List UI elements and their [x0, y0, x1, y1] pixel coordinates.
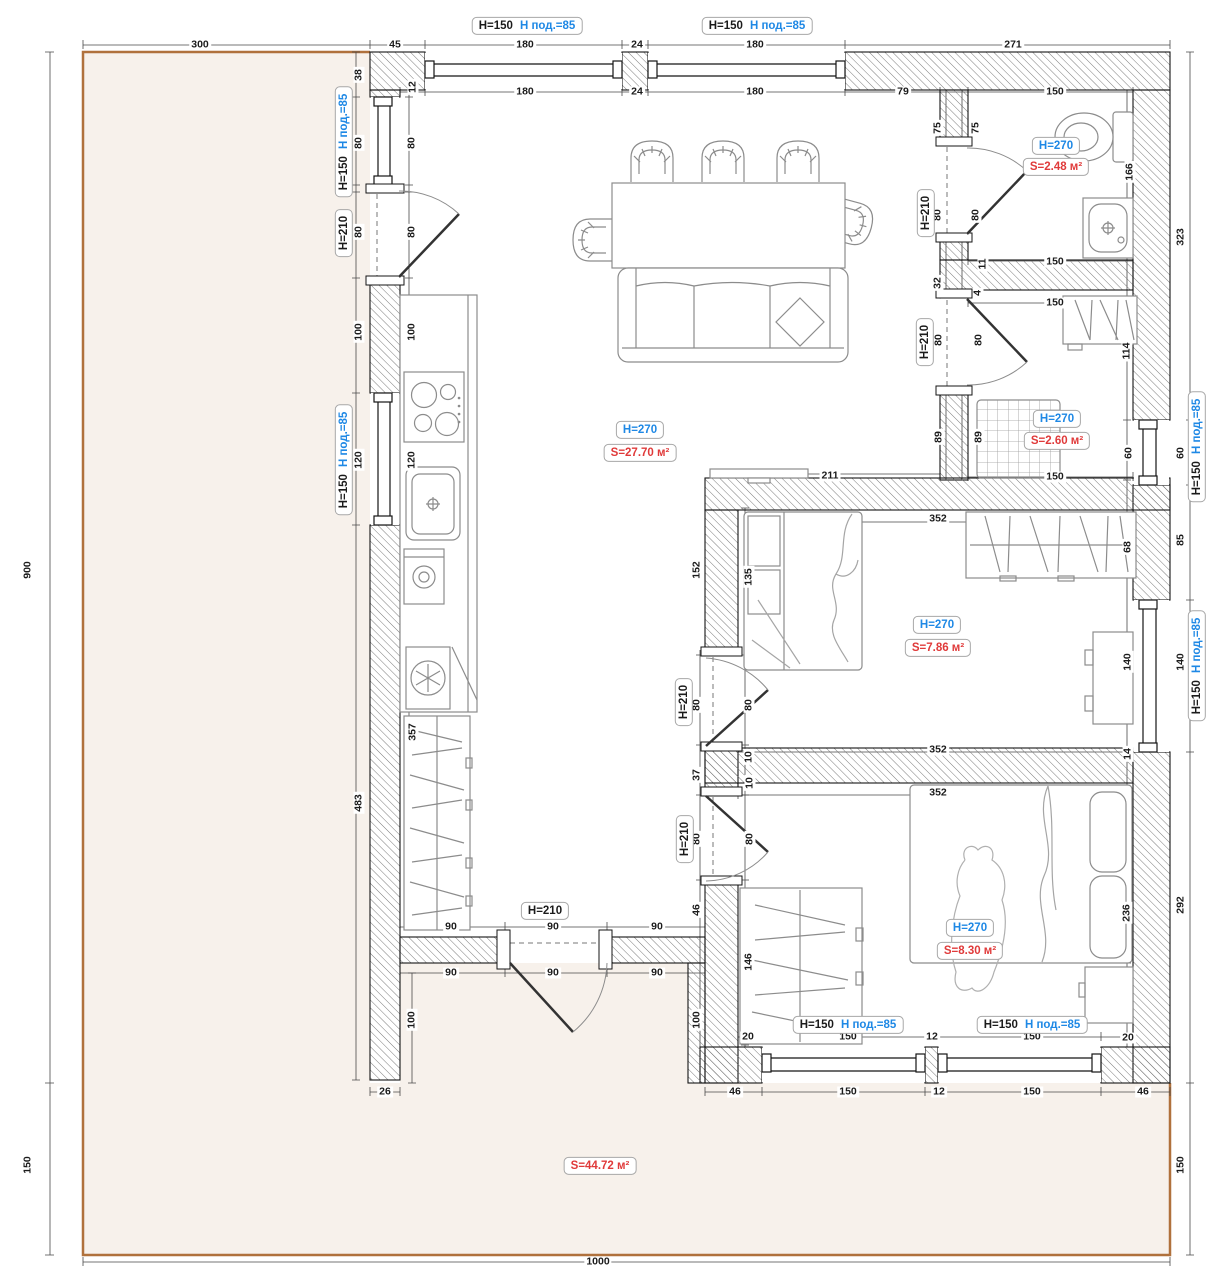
dim-label: 80: [973, 332, 984, 348]
dim-label: 75: [932, 120, 943, 136]
dim-label: 180: [514, 39, 536, 50]
dim-label: 236: [1121, 902, 1132, 924]
dim-label: 10: [743, 749, 754, 765]
room-area-label: S=27.70 м²: [604, 444, 677, 462]
dim-label: 180: [514, 86, 536, 97]
door-height-label: H=210: [521, 902, 569, 920]
window-height-label: H=150Н под.=85: [793, 1016, 904, 1034]
dim-label: 80: [353, 135, 364, 151]
room-area-label: S=2.60 м²: [1024, 432, 1090, 450]
room-area-label: S=44.72 м²: [564, 1157, 637, 1175]
dim-label: 352: [927, 787, 949, 798]
dim-label: 80: [691, 697, 702, 713]
dim-label: 20: [740, 1031, 756, 1042]
dim-label: 4: [972, 288, 983, 298]
dim-label: 46: [1135, 1086, 1151, 1097]
dim-label: 900: [22, 559, 33, 581]
dim-label: 150: [1175, 1154, 1186, 1176]
dim-label: 89: [973, 429, 984, 445]
door-height-label: H=210: [675, 678, 693, 726]
dim-label: 150: [837, 1086, 859, 1097]
dim-label: 45: [387, 39, 403, 50]
dim-label: 300: [189, 39, 211, 50]
floor-plan-page: 3004518024180271121802418079150388080100…: [0, 0, 1223, 1280]
dim-label: 1000: [584, 1256, 611, 1267]
dim-label: 150: [22, 1154, 33, 1176]
door-height-label: H=210: [676, 815, 694, 863]
dim-label: 90: [443, 921, 459, 932]
window-height-label: H=150Н под.=85: [1188, 392, 1206, 503]
dim-label: 75: [970, 120, 981, 136]
dim-label: 11: [977, 256, 988, 271]
dim-label: 24: [629, 39, 645, 50]
dim-label: 46: [727, 1086, 743, 1097]
dim-label: 14: [1122, 746, 1133, 762]
door-height-label: H=210: [335, 209, 353, 257]
room-height-label: H=270: [1033, 410, 1081, 428]
dim-label: 68: [1122, 539, 1133, 555]
dim-label: 80: [743, 697, 754, 713]
dim-label: 12: [924, 1031, 940, 1042]
window-height-label: H=150Н под.=85: [977, 1016, 1088, 1034]
dim-label: 211: [820, 470, 841, 481]
labels-layer: 3004518024180271121802418079150388080100…: [0, 0, 1223, 1280]
window-height-label: H=150Н под.=85: [702, 17, 813, 35]
dim-label: 352: [927, 513, 949, 524]
dim-label: 150: [1044, 471, 1066, 482]
dim-label: 180: [744, 86, 766, 97]
dim-label: 180: [744, 39, 766, 50]
dim-label: 26: [377, 1086, 393, 1097]
dim-label: 90: [649, 967, 665, 978]
room-area-label: S=7.86 м²: [905, 639, 971, 657]
dim-label: 12: [931, 1086, 947, 1097]
dim-label: 60: [1175, 445, 1186, 461]
dim-label: 37: [691, 767, 702, 783]
dim-label: 292: [1175, 894, 1186, 916]
dim-label: 20: [1120, 1032, 1136, 1043]
dim-label: 150: [1044, 297, 1066, 308]
dim-label: 90: [545, 967, 561, 978]
dim-label: 100: [691, 1009, 702, 1031]
dim-label: 12: [407, 79, 418, 95]
dim-label: 150: [1021, 1086, 1043, 1097]
dim-label: 120: [353, 449, 364, 471]
dim-label: 80: [744, 831, 755, 847]
dim-label: 80: [406, 224, 417, 240]
dim-label: 90: [443, 967, 459, 978]
room-height-label: H=270: [946, 919, 994, 937]
dim-label: 146: [743, 951, 754, 973]
dim-label: 483: [353, 792, 364, 814]
dim-label: 24: [629, 86, 645, 97]
dim-label: 166: [1124, 161, 1135, 183]
dim-label: 79: [895, 86, 911, 97]
dim-label: 80: [406, 135, 417, 151]
window-height-label: H=150Н под.=85: [335, 405, 353, 516]
dim-label: 38: [353, 67, 364, 83]
dim-label: 352: [927, 744, 949, 755]
dim-label: 271: [1002, 39, 1024, 50]
dim-label: 80: [353, 224, 364, 240]
dim-label: 140: [1122, 651, 1133, 673]
door-height-label: H=210: [917, 189, 935, 237]
dim-label: 100: [406, 1009, 417, 1031]
window-height-label: H=150Н под.=85: [472, 17, 583, 35]
room-height-label: H=270: [1032, 137, 1080, 155]
dim-label: 100: [406, 321, 417, 343]
dim-label: 46: [691, 902, 702, 918]
dim-label: 114: [1121, 341, 1132, 362]
room-area-label: S=2.48 м²: [1023, 158, 1089, 176]
dim-label: 150: [1044, 256, 1066, 267]
door-height-label: H=210: [916, 318, 934, 366]
dim-label: 80: [933, 332, 944, 348]
dim-label: 100: [353, 321, 364, 343]
room-height-label: H=270: [616, 421, 664, 439]
dim-label: 80: [970, 207, 981, 223]
dim-label: 135: [743, 566, 754, 588]
dim-label: 10: [744, 775, 755, 791]
dim-label: 152: [691, 559, 702, 581]
dim-label: 32: [932, 275, 943, 291]
dim-label: 89: [933, 429, 944, 445]
dim-label: 90: [649, 921, 665, 932]
dim-label: 90: [545, 921, 561, 932]
dim-label: 357: [407, 721, 418, 743]
dim-label: 323: [1175, 226, 1186, 248]
dim-label: 150: [1044, 86, 1066, 97]
dim-label: 60: [1123, 445, 1134, 461]
room-height-label: H=270: [913, 616, 961, 634]
window-height-label: H=150Н под.=85: [1188, 611, 1206, 722]
dim-label: 85: [1175, 532, 1186, 548]
dim-label: 140: [1175, 651, 1186, 673]
dim-label: 120: [406, 449, 417, 471]
window-height-label: H=150Н под.=85: [335, 87, 353, 198]
room-area-label: S=8.30 м²: [937, 942, 1003, 960]
